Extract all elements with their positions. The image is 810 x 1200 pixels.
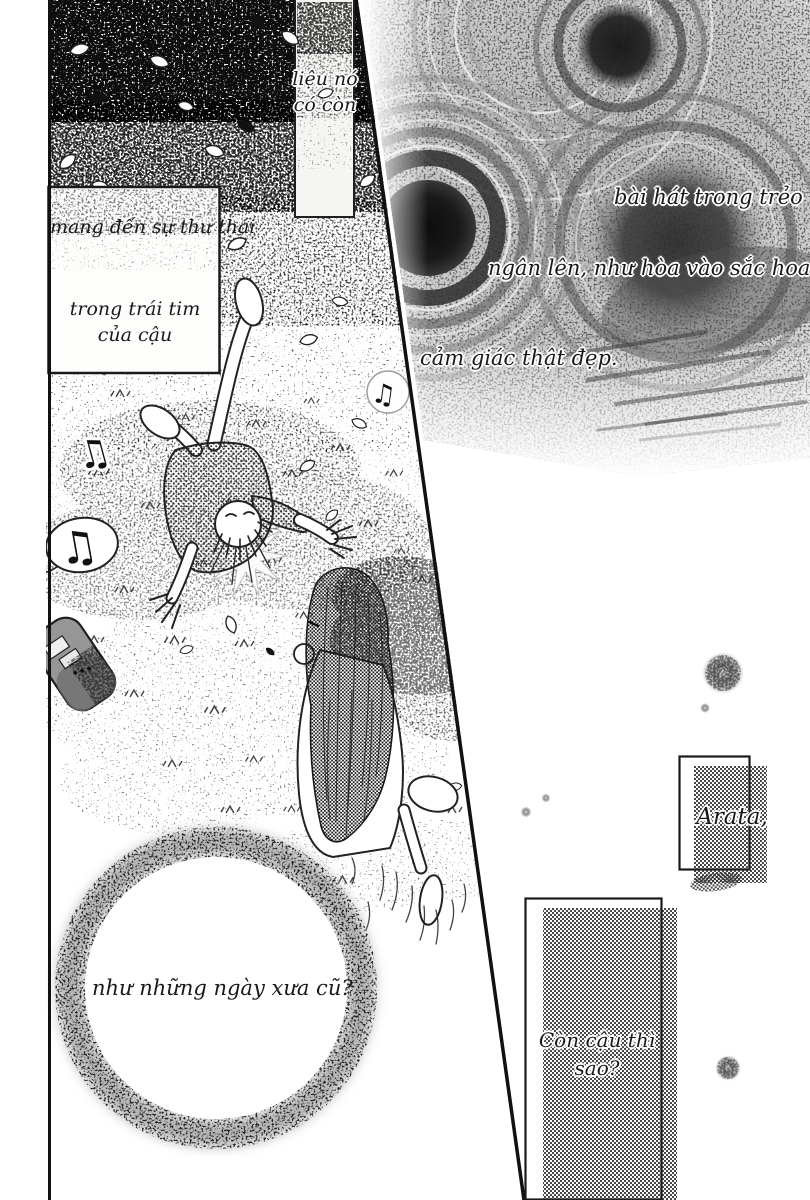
glow-circle xyxy=(70,842,362,1134)
name-panel xyxy=(680,757,768,884)
manga-page: ♫ ♫ ♫ xyxy=(0,0,810,1200)
manga-artwork: ♫ ♫ ♫ xyxy=(0,0,810,1200)
caption-box xyxy=(49,187,220,373)
speech-strip xyxy=(295,0,354,217)
question-panel xyxy=(526,899,678,1200)
dark-blob xyxy=(578,4,662,88)
music-note-icon: ♫ xyxy=(370,378,398,412)
